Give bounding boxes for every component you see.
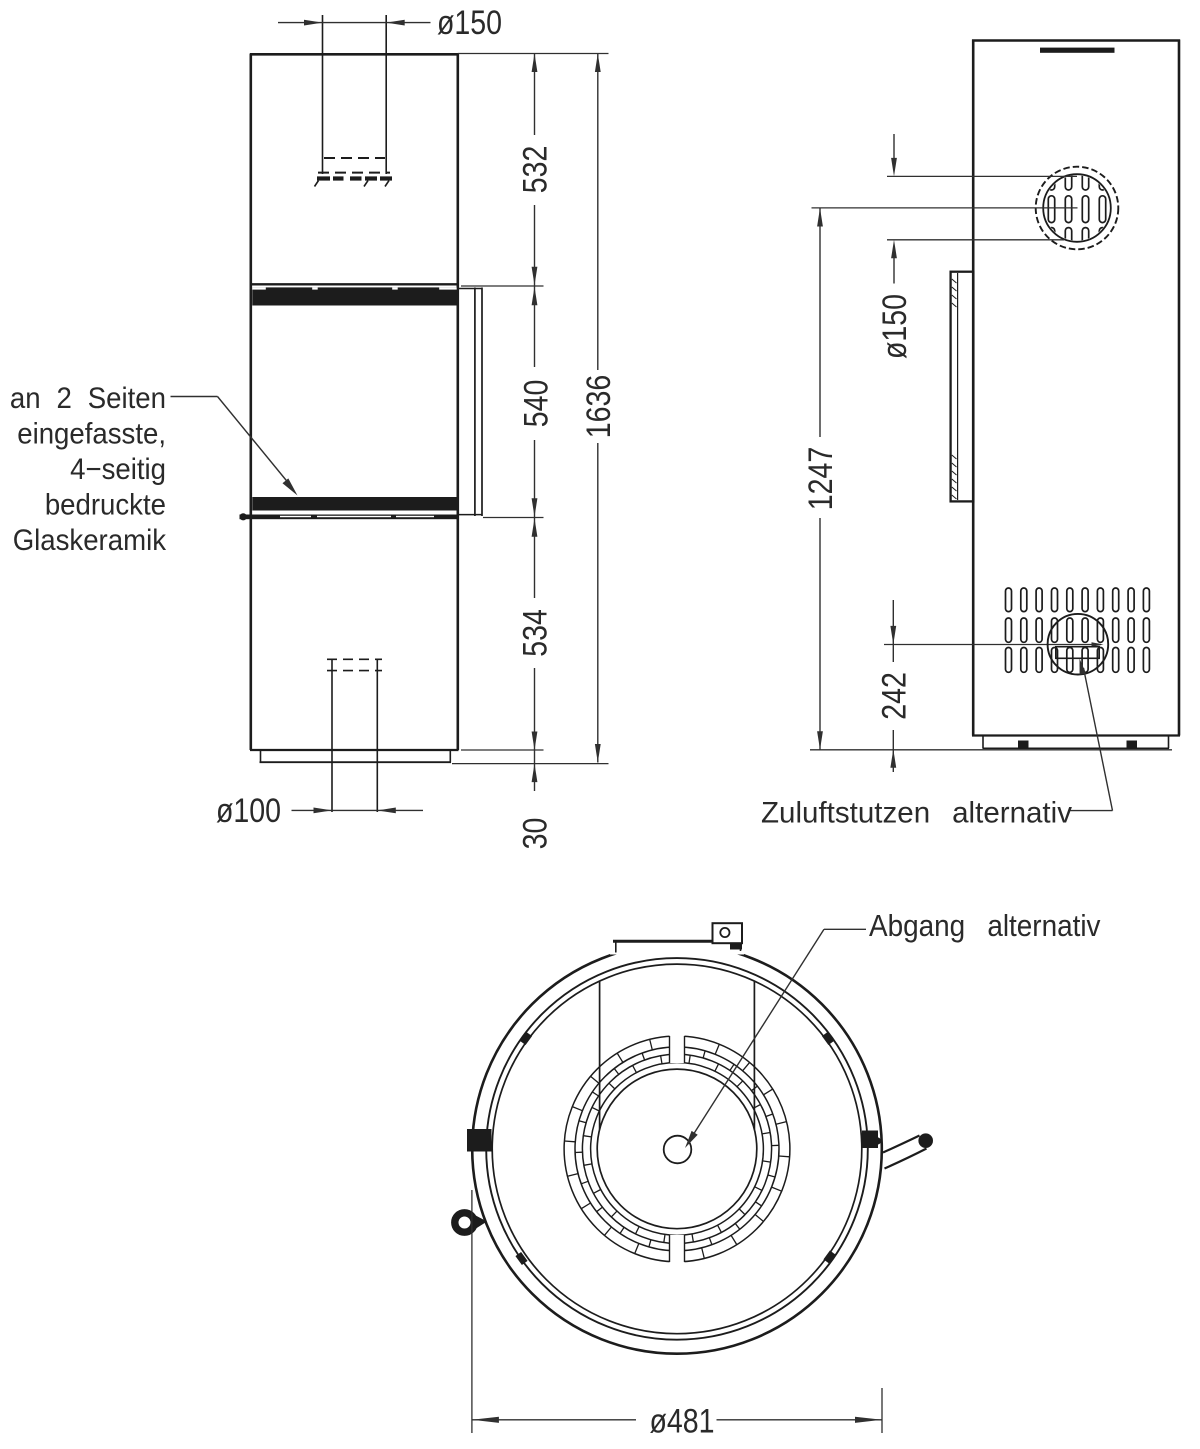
svg-text:1636: 1636	[579, 375, 617, 439]
svg-text:ø150: ø150	[437, 3, 502, 41]
svg-text:534: 534	[516, 609, 554, 657]
svg-text:540: 540	[517, 380, 555, 428]
svg-text:ø481: ø481	[650, 1402, 715, 1440]
svg-text:an 2 Seiten: an 2 Seiten	[10, 382, 166, 415]
svg-text:4−seitig: 4−seitig	[70, 453, 166, 486]
svg-text:bedruckte: bedruckte	[45, 488, 166, 521]
svg-text:Abgang alternativ: Abgang alternativ	[869, 909, 1101, 944]
svg-text:Glaskeramik: Glaskeramik	[13, 524, 167, 557]
svg-text:eingefasste,: eingefasste,	[17, 417, 166, 450]
svg-text:532: 532	[516, 146, 554, 194]
svg-text:Zuluftstutzen alternativ: Zuluftstutzen alternativ	[761, 796, 1072, 829]
svg-text:30: 30	[516, 818, 554, 850]
svg-text:ø100: ø100	[216, 791, 281, 829]
svg-text:242: 242	[875, 672, 913, 720]
svg-text:ø150: ø150	[876, 294, 914, 359]
svg-text:1247: 1247	[802, 447, 840, 511]
